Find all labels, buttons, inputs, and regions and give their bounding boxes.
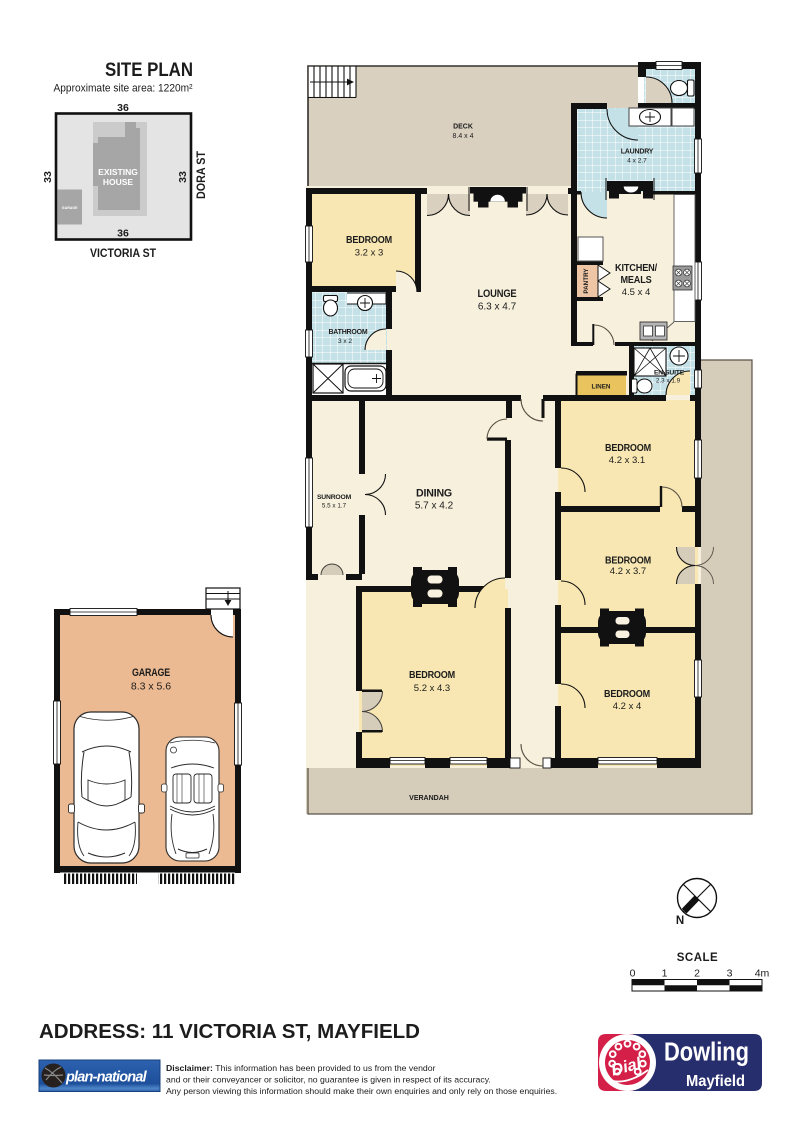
svg-text:LAUNDRY: LAUNDRY bbox=[621, 149, 654, 156]
svg-text:2.3 x 1.9: 2.3 x 1.9 bbox=[656, 378, 681, 385]
svg-text:6.3 x 4.7: 6.3 x 4.7 bbox=[478, 302, 517, 313]
svg-text:BEDROOM: BEDROOM bbox=[346, 235, 392, 246]
svg-text:DECK: DECK bbox=[453, 124, 473, 131]
svg-text:PANTRY: PANTRY bbox=[583, 268, 590, 294]
svg-text:plan-national: plan-national bbox=[65, 1070, 148, 1086]
svg-text:and or their conveyancer or so: and or their conveyancer or solicitor, n… bbox=[166, 1075, 491, 1085]
svg-text:8.3 x 5.6: 8.3 x 5.6 bbox=[131, 681, 171, 693]
svg-text:LOUNGE: LOUNGE bbox=[478, 288, 517, 300]
svg-text:5.7 x 4.2: 5.7 x 4.2 bbox=[415, 501, 454, 512]
svg-text:5.2 x 4.3: 5.2 x 4.3 bbox=[414, 683, 450, 694]
svg-text:BEDROOM: BEDROOM bbox=[605, 556, 651, 567]
svg-text:3.2 x 3: 3.2 x 3 bbox=[355, 248, 384, 259]
svg-text:EXISTING: EXISTING bbox=[98, 167, 138, 177]
svg-text:DINING: DINING bbox=[416, 488, 452, 500]
svg-text:Any person viewing this inform: Any person viewing this information shou… bbox=[166, 1086, 557, 1096]
svg-text:BEDROOM: BEDROOM bbox=[605, 443, 651, 454]
svg-text:33: 33 bbox=[177, 171, 189, 183]
svg-text:LINEN: LINEN bbox=[592, 384, 611, 391]
svg-text:N: N bbox=[676, 915, 684, 927]
svg-text:4m: 4m bbox=[755, 968, 770, 980]
svg-text:36: 36 bbox=[117, 102, 129, 114]
svg-text:SITE PLAN: SITE PLAN bbox=[105, 59, 193, 81]
svg-text:SUNROOM: SUNROOM bbox=[317, 494, 352, 501]
svg-text:KITCHEN/: KITCHEN/ bbox=[615, 263, 657, 274]
svg-text:VICTORIA ST: VICTORIA ST bbox=[90, 246, 157, 260]
svg-text:Mayfield: Mayfield bbox=[686, 1073, 745, 1090]
svg-text:8.4 x 4: 8.4 x 4 bbox=[452, 133, 473, 140]
svg-text:SCALE: SCALE bbox=[677, 952, 718, 964]
svg-text:5.5 x 1.7: 5.5 x 1.7 bbox=[322, 503, 347, 510]
svg-text:BEDROOM: BEDROOM bbox=[409, 670, 455, 681]
svg-text:Approximate site area: 1220m²: Approximate site area: 1220m² bbox=[54, 83, 193, 95]
svg-text:EN-SUITE: EN-SUITE bbox=[654, 370, 685, 377]
svg-text:4.2 x 3.1: 4.2 x 3.1 bbox=[609, 455, 645, 466]
svg-text:HOUSE: HOUSE bbox=[103, 177, 134, 187]
svg-text:GARAGE: GARAGE bbox=[132, 667, 170, 679]
svg-text:36: 36 bbox=[117, 228, 129, 240]
svg-text:ADDRESS: 11 VICTORIA ST, MAYFI: ADDRESS: 11 VICTORIA ST, MAYFIELD bbox=[39, 1020, 420, 1043]
svg-text:BATHROOM: BATHROOM bbox=[328, 329, 367, 336]
svg-text:4.2 x 4: 4.2 x 4 bbox=[613, 701, 642, 712]
svg-text:4.5 x 4: 4.5 x 4 bbox=[622, 287, 651, 298]
svg-text:DORA ST: DORA ST bbox=[196, 151, 208, 199]
svg-text:1: 1 bbox=[662, 968, 668, 980]
svg-text:MEALS: MEALS bbox=[621, 275, 652, 286]
svg-text:33: 33 bbox=[42, 171, 54, 183]
svg-text:Dowling: Dowling bbox=[664, 1039, 749, 1067]
svg-text:4 x 2.7: 4 x 2.7 bbox=[627, 158, 647, 165]
svg-text:Disclaimer: This information h: Disclaimer: This information has been pr… bbox=[166, 1063, 436, 1073]
svg-text:3: 3 bbox=[727, 968, 733, 980]
svg-text:GARAGE: GARAGE bbox=[62, 206, 78, 210]
svg-text:3 x 2: 3 x 2 bbox=[338, 338, 352, 345]
svg-text:4.2 x 3.7: 4.2 x 3.7 bbox=[610, 566, 646, 577]
svg-text:BEDROOM: BEDROOM bbox=[604, 689, 650, 700]
svg-text:2: 2 bbox=[694, 968, 700, 980]
svg-text:0: 0 bbox=[630, 968, 636, 980]
svg-text:VERANDAH: VERANDAH bbox=[409, 795, 449, 802]
